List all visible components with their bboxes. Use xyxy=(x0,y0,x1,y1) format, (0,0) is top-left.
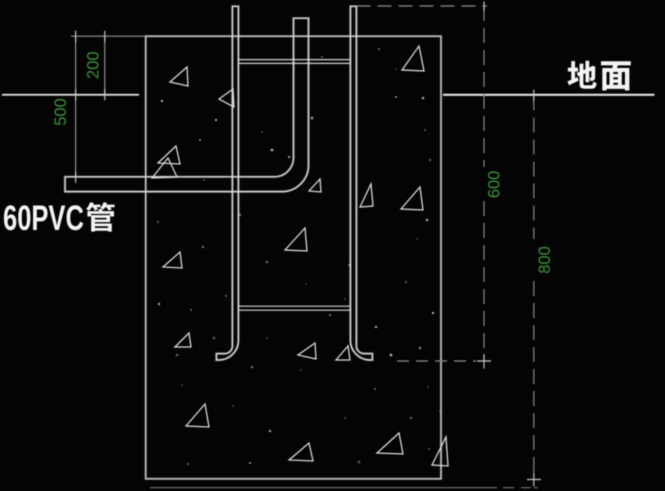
svg-text:500: 500 xyxy=(52,98,70,126)
svg-text:800: 800 xyxy=(536,246,554,274)
svg-text:60PVC: 60PVC xyxy=(3,199,84,238)
svg-text:600: 600 xyxy=(485,171,503,199)
svg-text:200: 200 xyxy=(85,51,103,79)
